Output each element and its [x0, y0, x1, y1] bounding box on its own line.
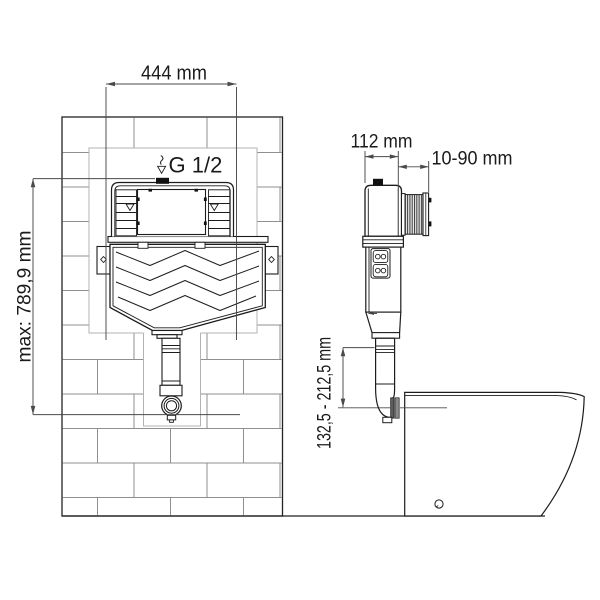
- flush-pipe-side: [376, 338, 400, 422]
- fixing-hole: [435, 500, 443, 508]
- outlet-gasket: [391, 398, 394, 418]
- width-dim-label: 444 mm: [141, 63, 207, 85]
- flush-bend-front: [162, 396, 182, 416]
- toilet-bowl: [405, 392, 585, 516]
- depth-dim-label: 112 mm: [351, 132, 413, 153]
- cistern-side: [363, 179, 432, 423]
- mounting-bracket-left: [97, 247, 110, 275]
- installation-diagram: 444 mm max: 789,9 mm G 1/2 112 mm 10-90 …: [0, 0, 600, 600]
- height-dim-label: max: 789,9 mm: [15, 231, 36, 363]
- adjust-dim-label: 10-90 mm: [432, 149, 513, 170]
- outlet-height-label: 132,5 - 212,5 mm: [315, 337, 336, 449]
- wall-bellows: [402, 193, 432, 236]
- inlet-cap-side: [373, 179, 383, 186]
- inlet-thread-label: G 1/2: [169, 153, 223, 178]
- water-inlet-cap: [156, 178, 169, 184]
- dimension-outlet-height: 132,5 - 212,5 mm: [315, 337, 375, 449]
- technical-drawing: 444 mm max: 789,9 mm G 1/2 112 mm 10-90 …: [0, 0, 600, 600]
- dimension-adjust-10-90: 10-90 mm: [398, 149, 512, 193]
- side-view: [338, 179, 584, 516]
- access-opening: [138, 190, 206, 235]
- mounting-bracket-right: [265, 247, 278, 275]
- frame-upper: [112, 178, 234, 237]
